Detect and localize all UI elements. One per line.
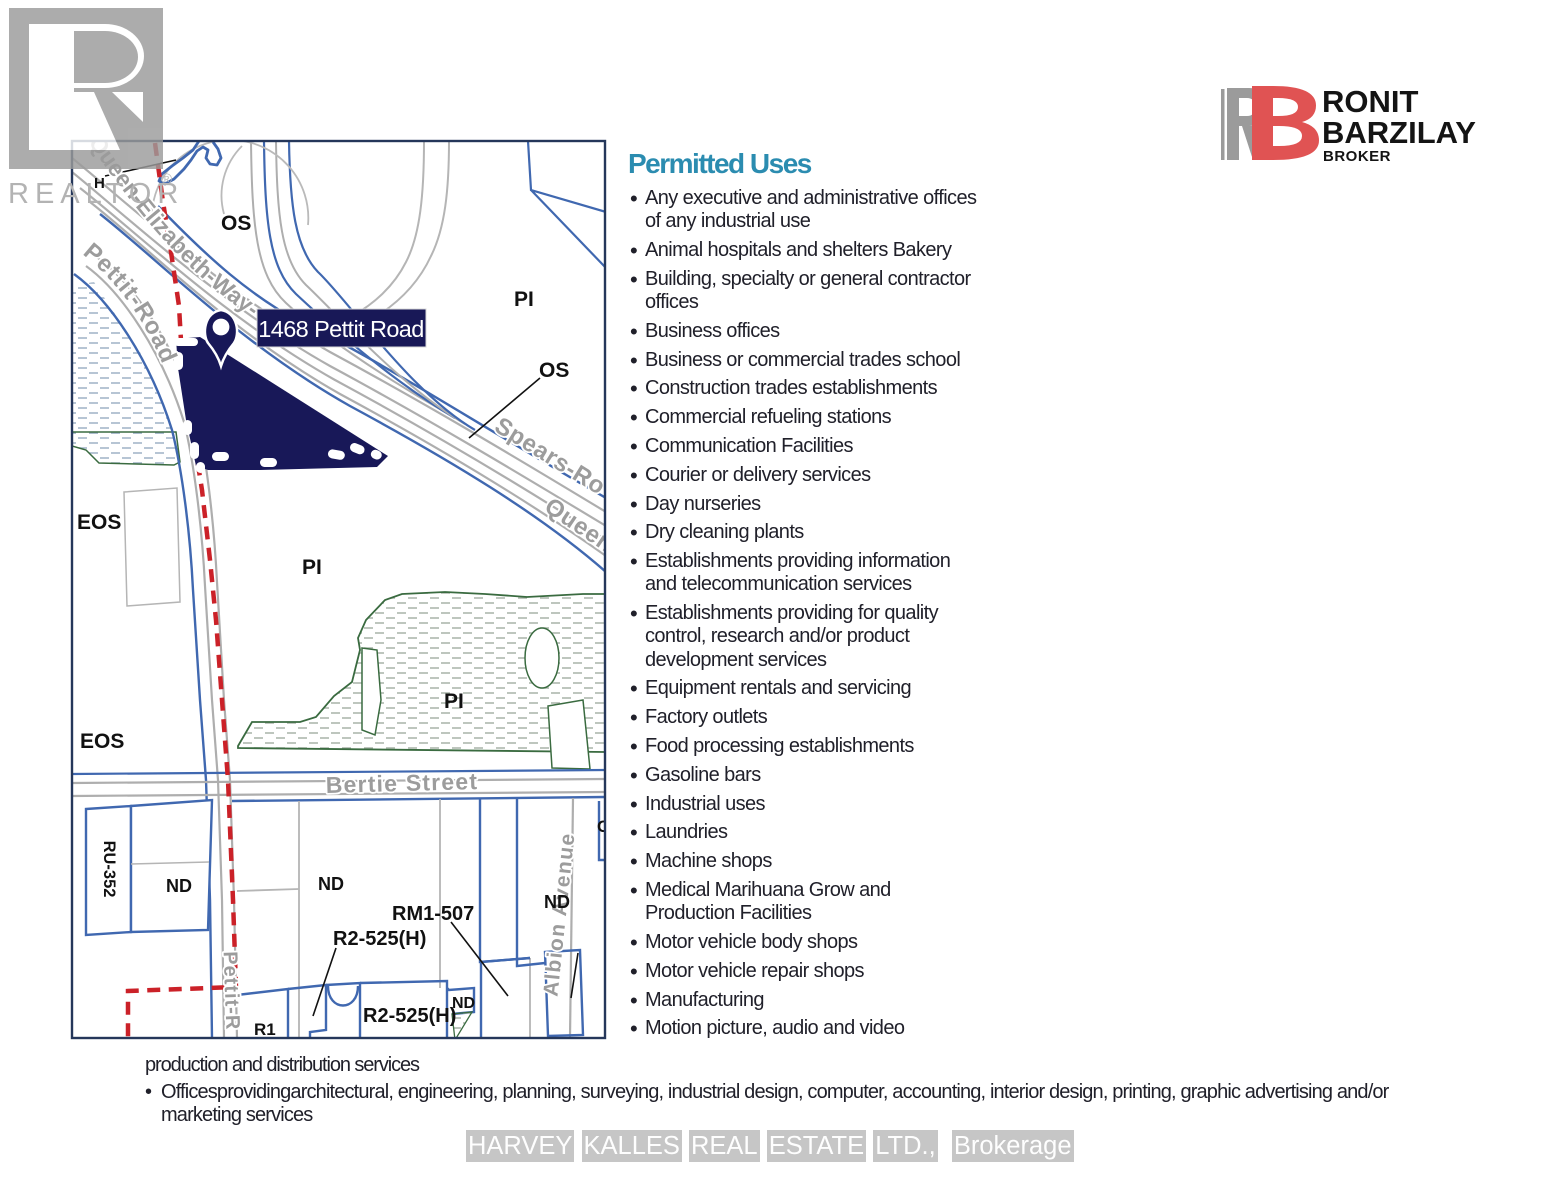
svg-text:R1: R1 [254, 1020, 276, 1039]
svg-text:PI: PI [444, 690, 464, 713]
svg-text:O: O [597, 817, 610, 836]
svg-text:®: ® [161, 171, 172, 188]
svg-text:BROKER: BROKER [1323, 148, 1391, 165]
svg-text:OS: OS [221, 212, 251, 235]
svg-text:REALTOR: REALTOR [8, 178, 184, 210]
svg-text:Bertie Street: Bertie Street [325, 768, 478, 798]
svg-text:RONIT: RONIT [1322, 84, 1419, 119]
svg-text:PI: PI [514, 288, 534, 311]
svg-text:ND: ND [318, 874, 344, 894]
svg-text:EOS: EOS [77, 511, 121, 534]
svg-text:1468 Pettit Road: 1468 Pettit Road [258, 316, 423, 342]
svg-text:PI: PI [302, 556, 322, 579]
svg-text:R2-525(H): R2-525(H) [363, 1005, 456, 1027]
svg-text:OS: OS [539, 359, 569, 382]
svg-text:RU-352: RU-352 [100, 841, 118, 898]
svg-text:EOS: EOS [80, 730, 124, 753]
svg-text:Pettit-R: Pettit-R [219, 951, 244, 1031]
svg-text:ND: ND [166, 876, 192, 896]
svg-text:R2-525(H): R2-525(H) [333, 928, 426, 950]
svg-text:RM1-507: RM1-507 [392, 903, 474, 925]
svg-text:ND: ND [544, 892, 570, 912]
svg-text:BARZILAY: BARZILAY [1322, 115, 1476, 150]
